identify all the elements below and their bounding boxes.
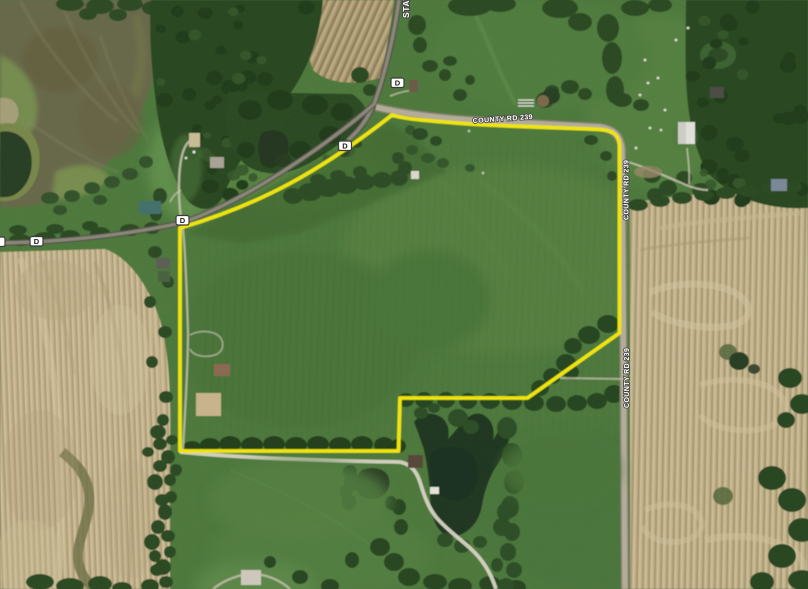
svg-text:D: D bbox=[34, 237, 40, 246]
svg-text:COUNTY RD 239: COUNTY RD 239 bbox=[624, 160, 631, 220]
svg-text:D: D bbox=[395, 79, 401, 88]
svg-text:D: D bbox=[180, 216, 186, 225]
svg-text:COUNTY RD 239: COUNTY RD 239 bbox=[624, 348, 631, 408]
svg-text:D: D bbox=[342, 142, 348, 151]
svg-text:STATE HW: STATE HW bbox=[401, 0, 411, 18]
